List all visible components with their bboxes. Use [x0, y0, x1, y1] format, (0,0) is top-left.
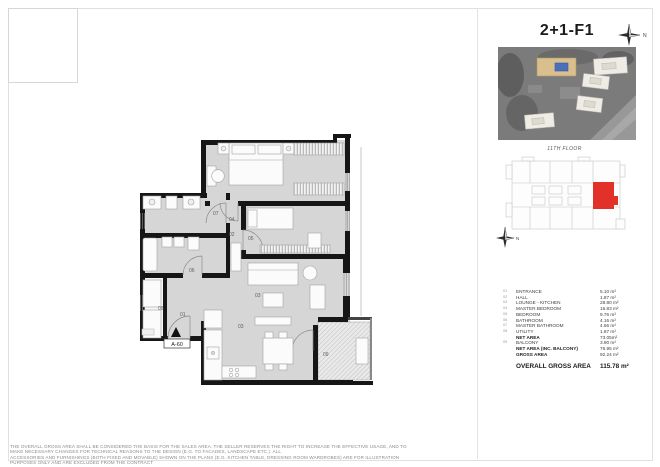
svg-text:N: N — [643, 33, 647, 39]
area-legend: 01ENTRANCE5.10 m² 02HALL1.87 m² 03LOUNGE… — [503, 289, 651, 358]
disclaimer-text: THE OVERALL GROSS AREA SHALL BE CONSIDER… — [10, 444, 418, 466]
room-label-08: 08 — [158, 306, 164, 312]
disclaimer-line-2: ACCESSORIES AND FURNISHINGS (BOTH FIXED … — [10, 455, 418, 466]
svg-text:A-60: A-60 — [171, 342, 183, 348]
sofa — [248, 263, 298, 285]
overall-gross-area: OVERALL GROSS AREA 115.78 m² — [503, 363, 651, 371]
room-label-03: 03 — [255, 293, 261, 299]
north-compass-icon: N — [615, 22, 651, 50]
panel-divider — [477, 8, 478, 459]
floor-plan: A-60 07 04 02 05 06 08 01 03 03 09 — [128, 133, 380, 398]
room-label-04: 04 — [229, 217, 235, 223]
dining-table — [263, 338, 293, 364]
highlight-unit-mark — [555, 63, 568, 71]
disclaimer-line-1: THE OVERALL GROSS AREA SHALL BE CONSIDER… — [10, 444, 418, 455]
svg-text:N: N — [516, 236, 519, 241]
floor-key-plan: N — [492, 153, 637, 248]
washer — [162, 237, 172, 247]
desk — [308, 233, 321, 248]
wardrobe — [294, 143, 344, 155]
coffee-table — [263, 293, 283, 307]
toilet — [166, 196, 177, 209]
floor-label: 11TH FLOOR — [492, 146, 637, 152]
room-label-03b: 03 — [238, 324, 244, 330]
vanity-stool — [212, 170, 225, 183]
legend-row-gross-area: GROSS AREA92.24 m² — [503, 352, 651, 358]
side-table — [303, 266, 317, 280]
fridge — [204, 310, 222, 328]
armchair — [310, 285, 325, 309]
keyplan-compass-icon: N — [496, 227, 519, 248]
satellite-image — [498, 47, 636, 140]
hall-closet — [231, 243, 241, 271]
bathtub — [143, 238, 157, 271]
utility-shelf — [143, 280, 161, 307]
wardrobe — [294, 183, 344, 195]
room-label-06: 06 — [189, 268, 195, 274]
room-label-05: 05 — [248, 236, 254, 242]
room-label-09: 09 — [323, 352, 329, 358]
toilet — [188, 237, 199, 250]
room-label-02: 02 — [229, 232, 235, 238]
logo-placeholder-box — [8, 8, 78, 83]
kitchen-counter — [222, 366, 256, 378]
balcony-table — [356, 338, 368, 364]
room-label-07: 07 — [213, 211, 219, 217]
sideboard — [255, 317, 291, 325]
room-label-01: 01 — [180, 312, 186, 318]
washer — [174, 237, 184, 247]
